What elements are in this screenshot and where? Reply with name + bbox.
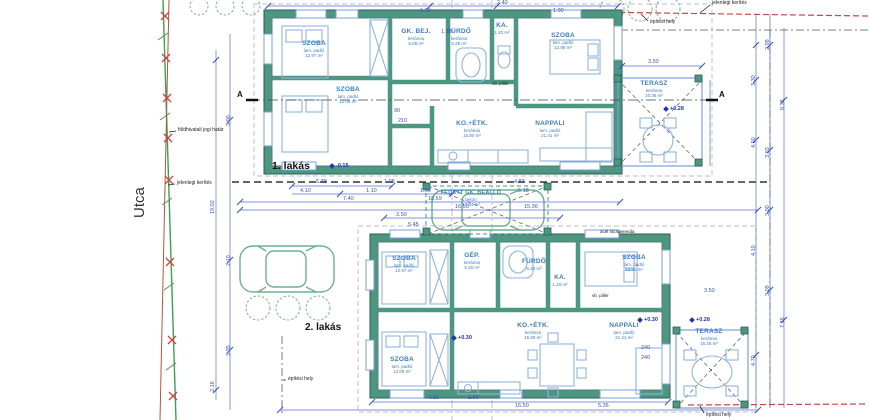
dim-label: 5.36 xyxy=(598,403,609,409)
dim-label: 4.10 xyxy=(751,245,757,256)
dim-label: 1.10 xyxy=(366,188,377,194)
house2-title: 2. lakás xyxy=(305,322,341,333)
dim-label: 4.10 xyxy=(428,395,439,401)
dim-label: 16.50 xyxy=(515,403,529,409)
boundary-lines xyxy=(158,0,177,420)
dim-label: 3.30 xyxy=(751,75,757,86)
dim-label: 240 xyxy=(641,355,650,361)
legal-boundary-label: földhivatali jogi határ xyxy=(178,127,224,133)
dim-label: 16.50 xyxy=(455,204,469,210)
dim-label: 1.50 xyxy=(420,188,431,194)
level-entry2: +0.30 xyxy=(452,335,472,341)
level-terrace1: +0.28 xyxy=(664,106,684,112)
dim-label: 4.10 xyxy=(300,188,311,194)
dim-label: 2.16 xyxy=(210,381,216,392)
dim-label: 3.50 xyxy=(396,212,407,218)
dim-label: 4.50 xyxy=(751,137,757,148)
street-label: Utca xyxy=(131,187,148,218)
house1-title: 1. lakás xyxy=(272,160,310,172)
dim-label: 1.08 xyxy=(384,179,395,185)
dim-label: 5.18 xyxy=(518,188,529,194)
section-marker-a-right: A xyxy=(719,90,725,99)
dim-label: 8.36 xyxy=(780,99,786,110)
pillar-label-2: vb. pillér xyxy=(592,293,609,298)
dim-label: 15.36 xyxy=(524,204,538,210)
dim-label: 3.03 xyxy=(765,147,771,158)
fence-left-label: jelenlegi kerítés xyxy=(177,180,212,186)
dim-label: 2.98 xyxy=(765,39,771,50)
dim-label: 1.38 xyxy=(441,29,452,35)
dim-label: 1.50 xyxy=(468,395,479,401)
dim-label: 1.90 xyxy=(420,8,431,14)
dim-label: 18.59 xyxy=(428,196,442,202)
level-living2: +0.30 xyxy=(638,317,658,323)
dim-label: 5.45 xyxy=(408,222,419,228)
dim-label: 5.38 xyxy=(316,179,327,185)
dim-label: 2.40 xyxy=(497,0,508,6)
car-street xyxy=(240,246,334,292)
building-area-bottom-left-label: építési hely xyxy=(288,376,313,382)
level-terrace2: +0.28 xyxy=(690,317,710,323)
site-floor-plan: Utca 1. lakás 2. lakás földhivatali jogi… xyxy=(0,0,870,420)
dim-label: 2.10 xyxy=(226,255,232,266)
dim-label: 4.70 xyxy=(751,355,757,366)
dim-label: 240 xyxy=(641,345,650,351)
dim-label: 4.83 xyxy=(514,179,525,185)
dim-label: 19.02 xyxy=(210,200,216,214)
dim-label: 3.50 xyxy=(704,288,715,294)
dim-label: 3.50 xyxy=(648,59,659,65)
dim-label: 3.00 xyxy=(226,115,232,126)
dim-label: 3.09 xyxy=(765,285,771,296)
dim-label: 210 xyxy=(398,118,407,124)
dim-label: 7.36 xyxy=(780,317,786,328)
building-area-top-label: építési hely xyxy=(650,19,675,25)
dim-label: 3.35 xyxy=(226,345,232,356)
section-marker-a-left: A xyxy=(237,90,243,99)
dim-label: 7.40 xyxy=(343,196,354,202)
dim-label: 3.00 xyxy=(765,205,771,216)
dim-label: 1.90 xyxy=(553,8,564,14)
dim-label: 90 xyxy=(394,108,400,114)
fence-top-label: jelenlegi kerítés xyxy=(712,0,747,6)
level-house1: -0.15 xyxy=(330,163,349,169)
pillar-label-1: vb. pillér xyxy=(492,81,509,86)
beam-label: acél rácsgerenda xyxy=(600,229,635,234)
house2-walls xyxy=(370,234,670,398)
building-area-bottom-right-label: építési hely xyxy=(706,412,731,418)
